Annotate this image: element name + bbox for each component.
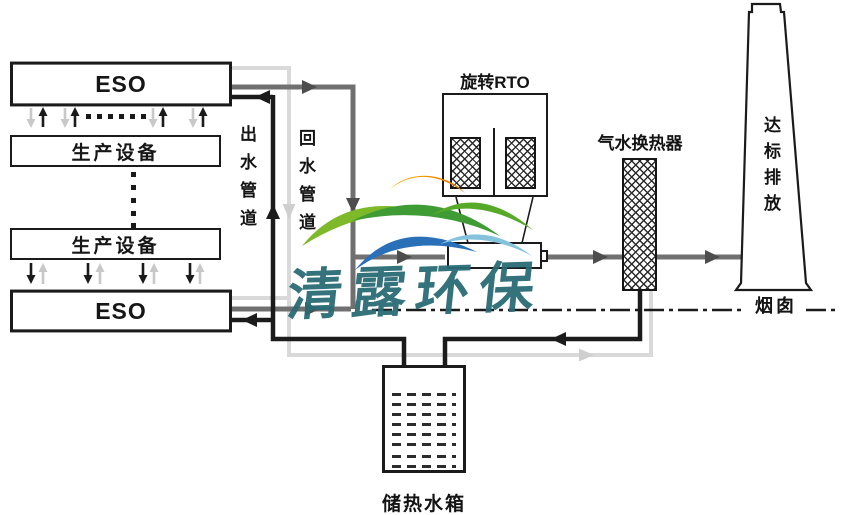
rto-heat-media-right (505, 137, 536, 189)
equipment-bottom-label: 生产设备 (71, 231, 159, 258)
exchange-arrows-bottom-row (27, 263, 205, 284)
duct-outlet-nub (540, 250, 548, 262)
heat-storage-tank (382, 365, 466, 473)
water-level-line (392, 443, 456, 446)
chimney-discharge-label: 达标排放 (758, 116, 783, 220)
production-equipment-top: 生产设备 (10, 135, 221, 167)
rto-burner-connectors (456, 197, 533, 243)
eso-top-label: ESO (95, 70, 147, 98)
water-level-line (392, 423, 456, 426)
water-level-line (392, 403, 456, 406)
tank-title: 储热水箱 (362, 489, 486, 515)
water-level-line (392, 455, 456, 458)
rto-rotor-divider (493, 128, 495, 195)
water-level-line (392, 413, 456, 416)
ellipsis-dots (86, 114, 146, 119)
vertical-ellipsis-dots (131, 172, 136, 228)
return-pipe-label: 回水管道 (293, 129, 318, 241)
equipment-top-label: 生产设备 (71, 138, 159, 165)
production-equipment-bottom: 生产设备 (10, 228, 221, 260)
water-level-line (392, 465, 456, 468)
outlet-pipe-label: 出水管道 (234, 125, 259, 237)
rto-title: 旋转RTO (442, 68, 548, 93)
heat-exchanger-title: 气水换热器 (582, 129, 698, 154)
water-level-line (392, 433, 456, 436)
rto-gas-duct (447, 242, 542, 269)
eso-unit-bottom: ESO (10, 290, 232, 333)
process-flow-diagram: ESO 生产设备 生产设备 ESO 旋转RTO 气水换热器 储热水箱 出水管道 … (0, 0, 842, 515)
water-level-line (392, 393, 456, 396)
chimney-caption: 烟囱 (746, 292, 806, 318)
exchange-arrows-top-row (27, 107, 208, 128)
rotary-rto-unit (442, 93, 548, 197)
gas-water-heat-exchanger (622, 158, 657, 291)
eso-unit-top: ESO (10, 62, 232, 107)
eso-bottom-label: ESO (95, 297, 147, 325)
rto-heat-media-left (450, 137, 481, 189)
